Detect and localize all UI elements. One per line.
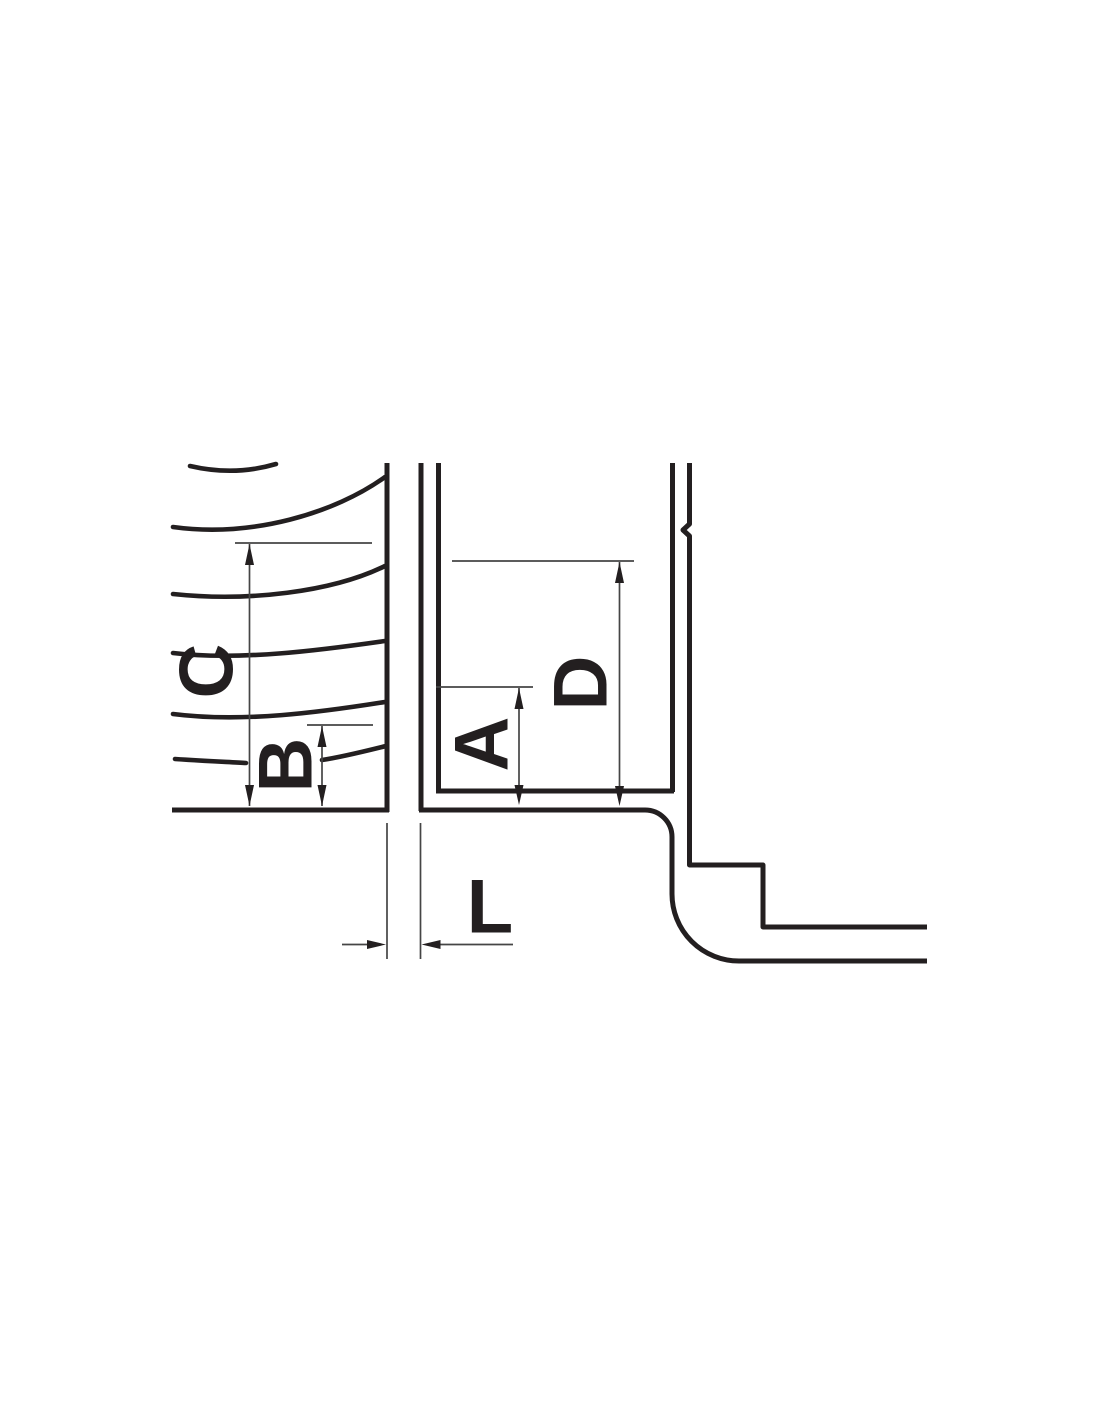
dimension-a: A bbox=[436, 687, 533, 805]
socket-contour-curve-1 bbox=[173, 477, 385, 530]
arrowhead-down-a bbox=[515, 785, 524, 805]
arrowhead-right-l bbox=[367, 940, 386, 949]
pipe-socket-cross-section-drawing: C B A D bbox=[0, 0, 1100, 1422]
dimension-l: L bbox=[342, 823, 513, 959]
dimension-label-b: B bbox=[244, 738, 329, 793]
fitting-outer-wall-stepped-path bbox=[683, 463, 927, 927]
arrowhead-up-d bbox=[615, 562, 624, 583]
socket-contour-curve-4 bbox=[173, 702, 385, 717]
arrowhead-down-d bbox=[615, 786, 624, 806]
dimension-b: B bbox=[244, 725, 373, 806]
dimension-label-d: D bbox=[539, 656, 624, 711]
dimension-label-c: C bbox=[165, 644, 250, 699]
dimension-label-a: A bbox=[440, 717, 525, 772]
socket-contour-curve-5-right bbox=[322, 746, 386, 760]
socket-contour-curve-top bbox=[190, 464, 276, 471]
arrowhead-up-a bbox=[515, 688, 524, 709]
arrowhead-left-l bbox=[422, 940, 441, 949]
arrowhead-up-c bbox=[245, 544, 254, 565]
socket-contour-curve-5-left bbox=[175, 759, 246, 763]
fitting-right-wall bbox=[673, 463, 928, 927]
technical-drawing-page: C B A D bbox=[0, 0, 1100, 1422]
dimension-label-l: L bbox=[467, 865, 513, 950]
socket-contour-curve-2 bbox=[173, 566, 385, 597]
